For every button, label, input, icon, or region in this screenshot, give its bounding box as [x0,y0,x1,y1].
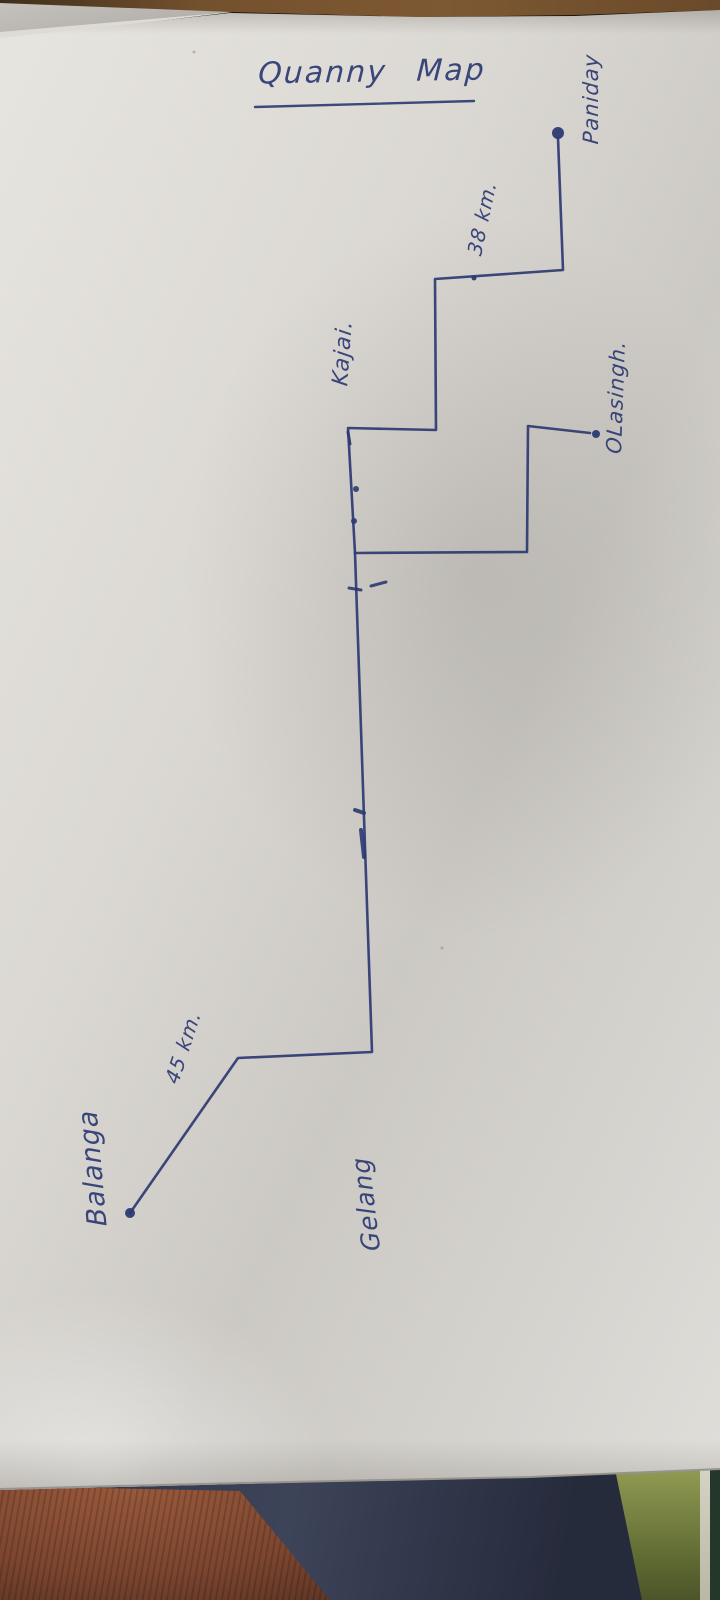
map-title: Quanny Map [257,52,486,91]
place-label-balanga: Balanga [72,1109,113,1226]
place-label-olasingh: OLasingh. [602,339,630,455]
map-labels: Quanny Map Balanga45 km.GelangKajai.38 k… [0,0,720,1600]
place-label-kajai: Kajai. [328,318,357,387]
place-label-gelang: Gelang [346,1156,387,1252]
photo-of-hand-drawn-map: { "photo": { "scene": "hand-drawn route … [0,0,720,1600]
distance-label-45km: 45 km. [160,1007,206,1088]
place-label-paniday: Paniday [579,53,603,145]
distance-label-38km: 38 km. [463,178,502,258]
